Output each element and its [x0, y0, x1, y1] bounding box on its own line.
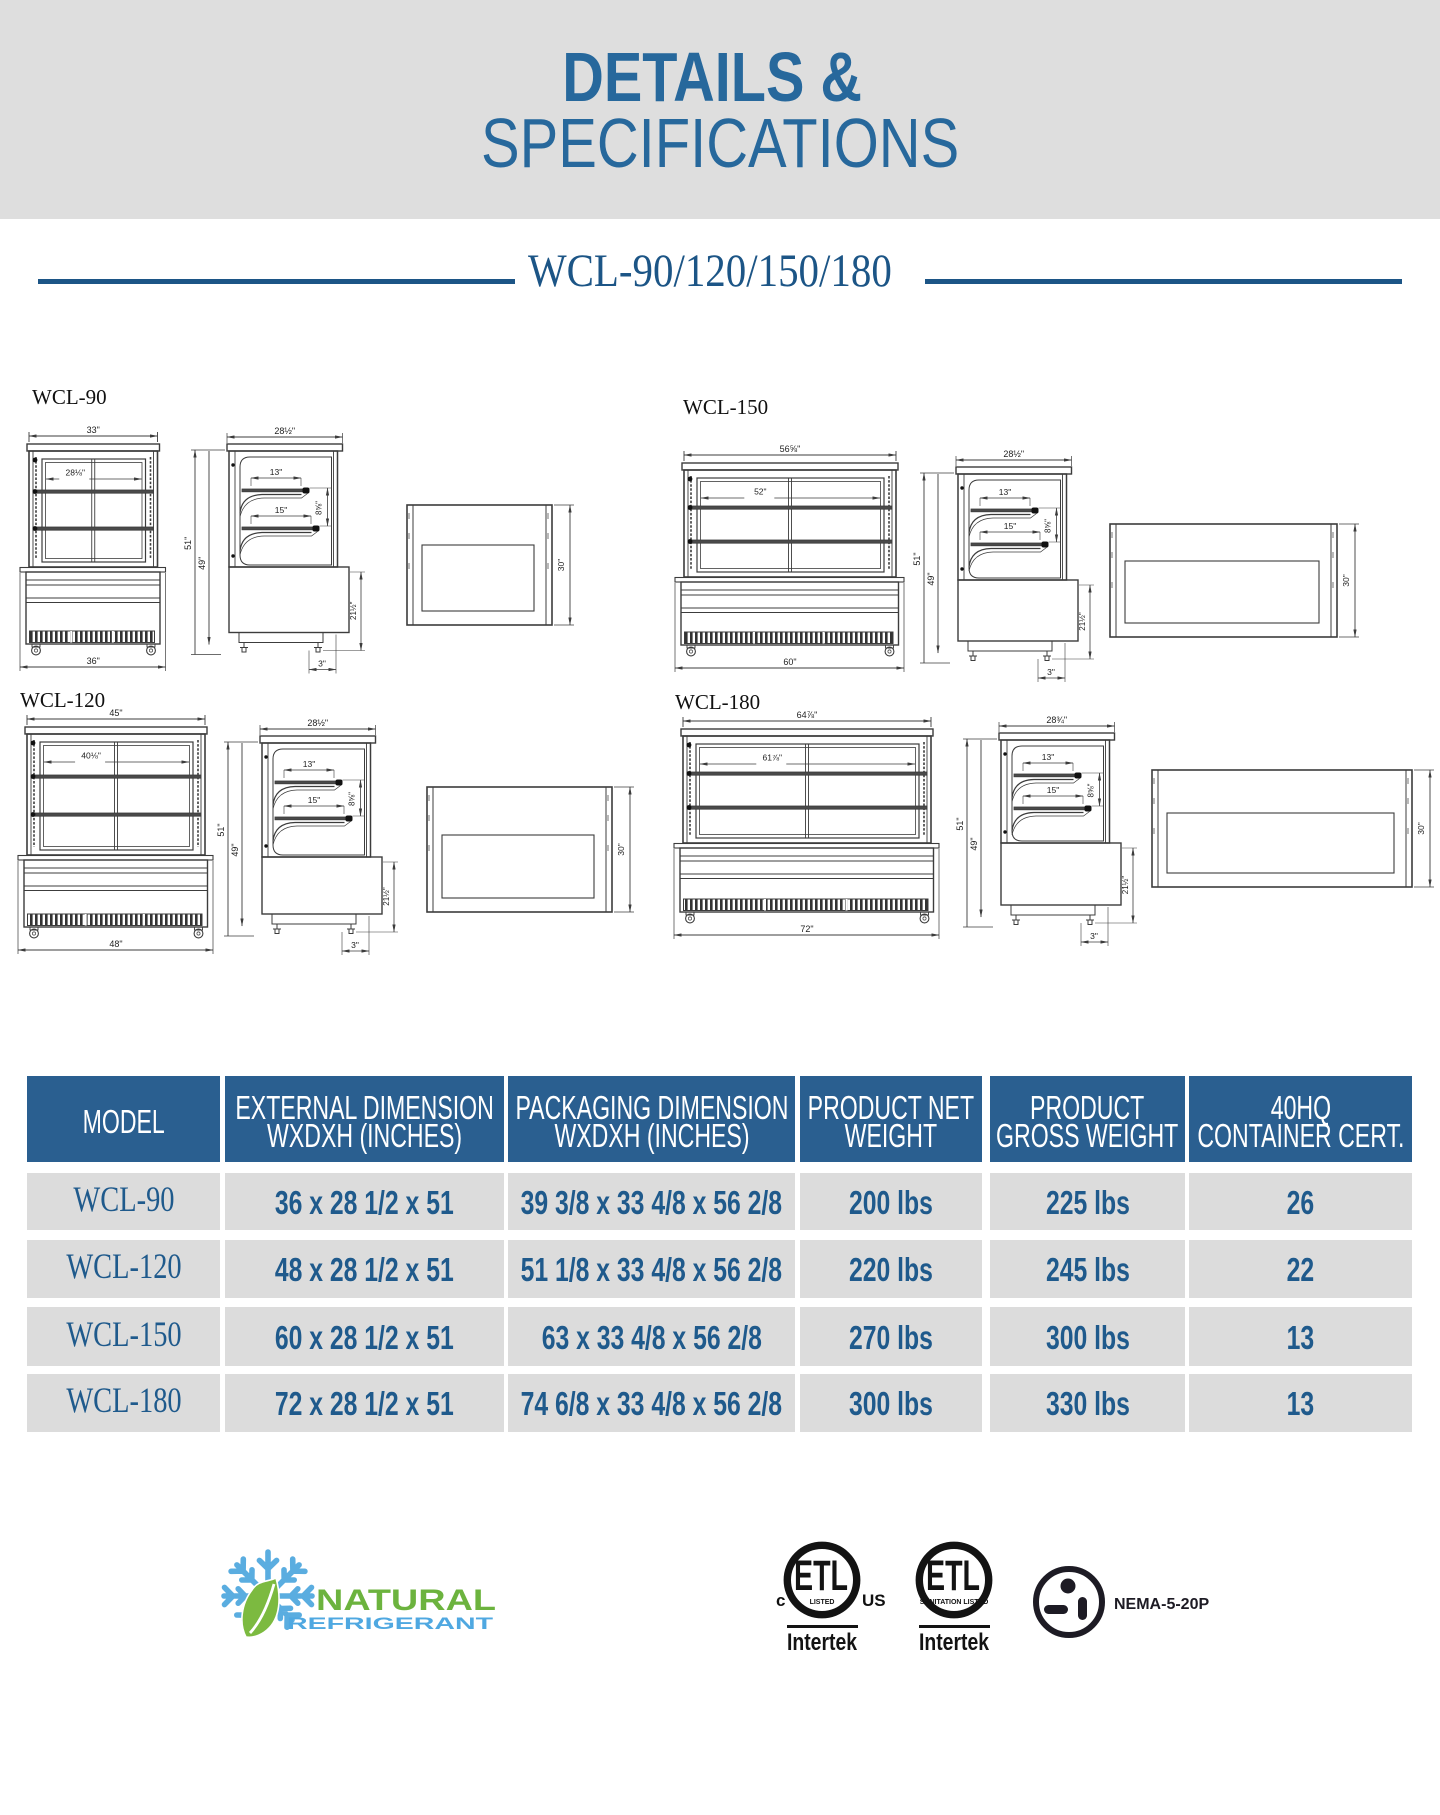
svg-text:30": 30" — [556, 559, 566, 571]
svg-text:WCL-90: WCL-90 — [32, 385, 107, 409]
svg-text:13": 13" — [303, 759, 315, 769]
svg-text:21½": 21½" — [1078, 612, 1087, 631]
svg-text:72": 72" — [800, 924, 813, 934]
svg-text:49": 49" — [926, 572, 936, 585]
svg-text:Intertek: Intertek — [919, 1629, 990, 1656]
svg-text:28½": 28½" — [307, 718, 328, 728]
svg-text:Intertek: Intertek — [787, 1629, 858, 1656]
svg-text:WCL-150: WCL-150 — [683, 395, 768, 419]
svg-text:15": 15" — [275, 505, 287, 515]
svg-text:49": 49" — [969, 837, 979, 850]
svg-text:30": 30" — [1416, 822, 1426, 834]
svg-text:21½": 21½" — [382, 887, 391, 906]
svg-text:28½": 28½" — [1003, 449, 1024, 459]
svg-text:WCL-120: WCL-120 — [20, 688, 105, 712]
svg-text:WCL-180: WCL-180 — [675, 690, 760, 714]
svg-text:3": 3" — [1047, 667, 1055, 677]
svg-text:15": 15" — [1004, 521, 1016, 531]
svg-text:3": 3" — [1090, 931, 1098, 941]
svg-text:30": 30" — [616, 843, 626, 855]
svg-text:28⅛": 28⅛" — [65, 468, 85, 478]
svg-text:8⅝": 8⅝" — [1044, 519, 1053, 533]
svg-text:3": 3" — [318, 659, 326, 669]
svg-text:45": 45" — [109, 708, 122, 718]
svg-text:15": 15" — [1047, 785, 1059, 795]
svg-text:SANITATION LISTED: SANITATION LISTED — [920, 1599, 989, 1606]
svg-text:ETL: ETL — [794, 1552, 848, 1600]
svg-text:33": 33" — [87, 425, 100, 435]
svg-text:28½": 28½" — [274, 426, 295, 436]
svg-text:REFRIGERANT: REFRIGERANT — [287, 1615, 493, 1633]
svg-text:48": 48" — [109, 939, 122, 949]
svg-text:36": 36" — [87, 656, 100, 666]
svg-text:21½": 21½" — [349, 601, 358, 620]
svg-text:8⅝": 8⅝" — [348, 792, 357, 806]
svg-text:8⅝": 8⅝" — [315, 501, 324, 515]
svg-text:49": 49" — [230, 843, 240, 856]
svg-text:13": 13" — [999, 487, 1011, 497]
svg-text:30": 30" — [1341, 574, 1351, 586]
svg-text:NATURAL: NATURAL — [316, 1584, 496, 1617]
svg-text:51": 51" — [912, 552, 922, 565]
svg-text:52": 52" — [754, 487, 766, 497]
svg-text:51": 51" — [216, 823, 226, 836]
svg-text:US: US — [862, 1591, 886, 1610]
svg-text:51": 51" — [183, 537, 193, 550]
svg-text:40⅛": 40⅛" — [81, 751, 101, 761]
svg-text:64⅞": 64⅞" — [797, 710, 818, 720]
svg-text:3": 3" — [351, 940, 359, 950]
svg-text:13": 13" — [1042, 752, 1054, 762]
svg-text:49": 49" — [197, 557, 207, 570]
svg-text:60": 60" — [783, 657, 796, 667]
svg-text:61⅞": 61⅞" — [762, 753, 782, 763]
svg-text:LISTED: LISTED — [810, 1599, 835, 1606]
svg-text:8⅝": 8⅝" — [1087, 783, 1096, 797]
svg-text:NEMA-5-20P: NEMA-5-20P — [1114, 1596, 1209, 1613]
svg-text:56⅝": 56⅝" — [780, 444, 801, 454]
svg-text:51": 51" — [955, 817, 965, 830]
svg-text:ETL: ETL — [926, 1552, 980, 1600]
svg-text:13": 13" — [270, 467, 282, 477]
svg-text:15": 15" — [308, 795, 320, 805]
svg-text:c: c — [776, 1591, 785, 1610]
svg-text:21½": 21½" — [1121, 876, 1130, 895]
svg-text:28¾": 28¾" — [1046, 715, 1067, 725]
